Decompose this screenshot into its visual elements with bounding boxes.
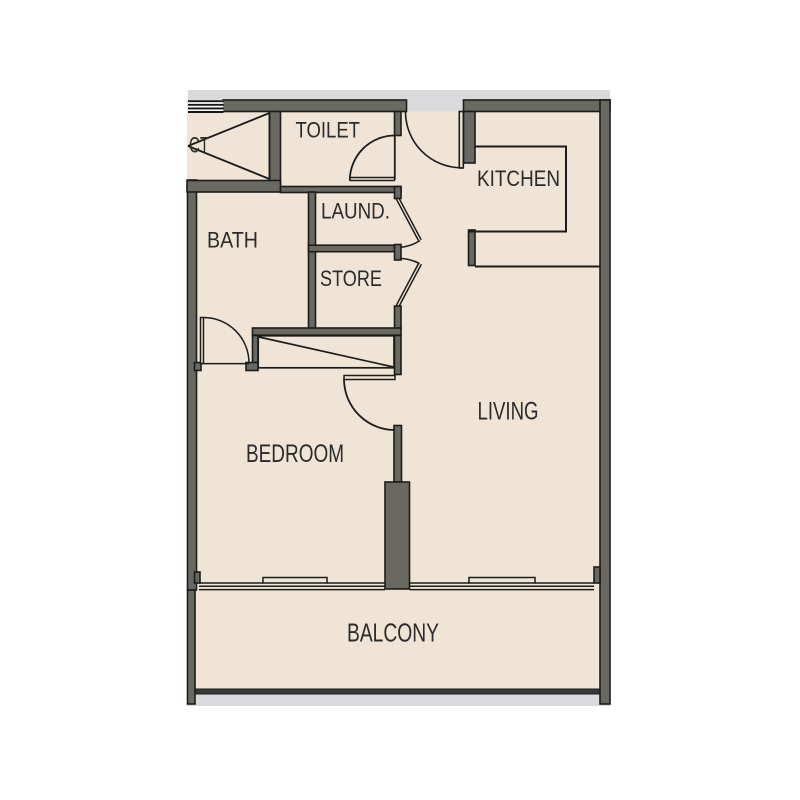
svg-text:LIVING: LIVING: [478, 398, 539, 426]
svg-text:BEDROOM: BEDROOM: [246, 440, 344, 468]
svg-text:KITCHEN: KITCHEN: [477, 166, 560, 191]
svg-text:CT: CT: [189, 133, 209, 158]
svg-text:BALCONY: BALCONY: [347, 618, 439, 648]
svg-text:BATH: BATH: [207, 228, 258, 253]
svg-text:LAUND.: LAUND.: [321, 199, 390, 224]
svg-text:STORE: STORE: [320, 266, 382, 291]
svg-text:TOILET: TOILET: [296, 118, 361, 143]
